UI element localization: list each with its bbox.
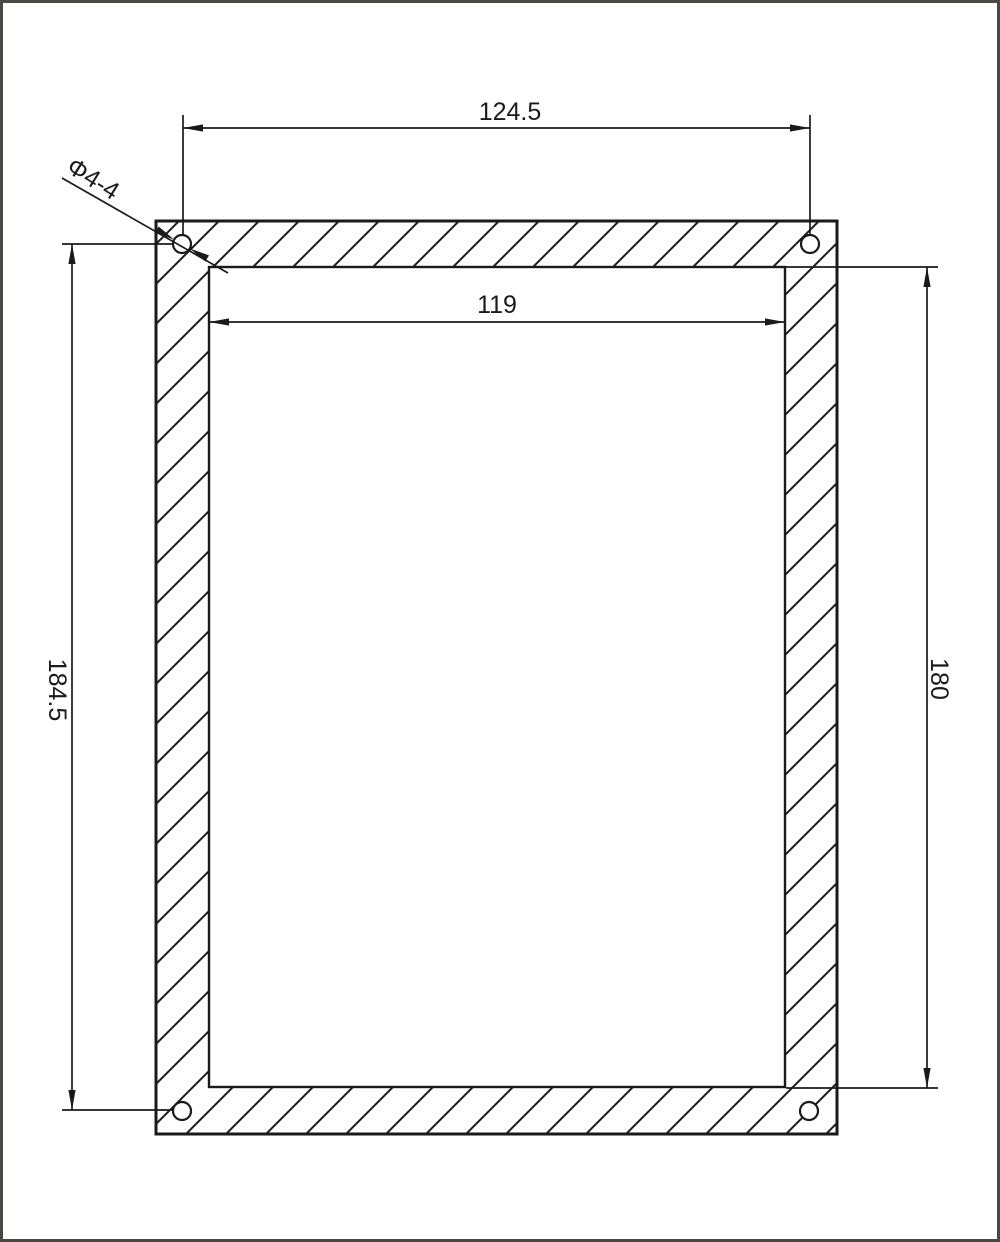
mounting-hole-bottom-right: [800, 1102, 818, 1120]
dim-inner-width-label: 119: [477, 291, 517, 319]
mounting-hole-top-right: [801, 235, 819, 253]
dim-outer-width-label: 124.5: [479, 98, 542, 126]
mounting-hole-bottom-left: [173, 1102, 191, 1120]
dim-right-height-label: 180: [925, 658, 953, 700]
sheet-background: [0, 0, 1000, 1242]
dim-left-height-label: 184.5: [43, 659, 71, 722]
technical-drawing-sheet: 124.5 119 184.5 180 Φ4-4: [0, 0, 1000, 1242]
